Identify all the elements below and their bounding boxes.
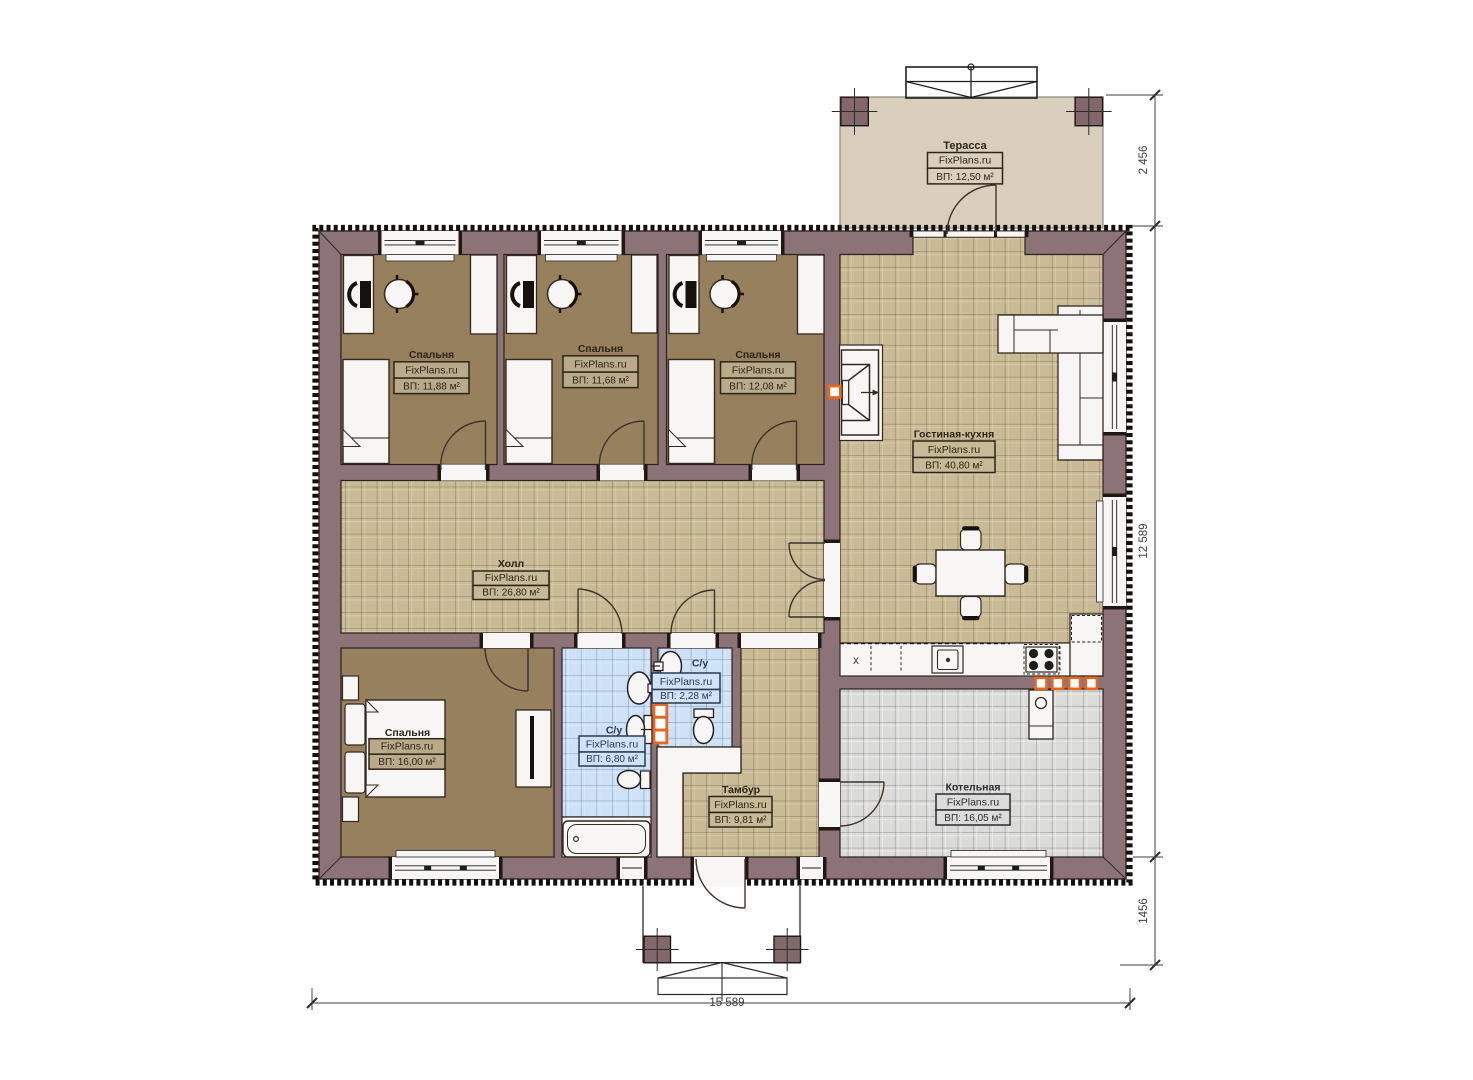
svg-text:Холл: Холл (498, 558, 524, 570)
svg-text:FixPlans.ru: FixPlans.ru (660, 676, 713, 688)
svg-text:ВП: 16,00 м²: ВП: 16,00 м² (378, 757, 436, 768)
svg-text:ВП: 26,80 м²: ВП: 26,80 м² (482, 588, 540, 599)
svg-text:Спальня: Спальня (578, 343, 623, 355)
svg-text:ВП: 9,81 м²: ВП: 9,81 м² (715, 815, 768, 826)
svg-text:ВП: 2,28 м²: ВП: 2,28 м² (660, 691, 713, 702)
svg-text:12 589: 12 589 (1138, 523, 1150, 558)
svg-text:FixPlans.ru: FixPlans.ru (574, 359, 627, 371)
svg-text:Котельная: Котельная (946, 782, 1001, 794)
svg-text:ВП: 11,88 м²: ВП: 11,88 м² (403, 382, 460, 393)
svg-text:Терасса: Терасса (943, 140, 987, 152)
svg-text:FixPlans.ru: FixPlans.ru (928, 444, 981, 456)
svg-text:Спальня: Спальня (385, 727, 430, 739)
svg-text:FixPlans.ru: FixPlans.ru (939, 155, 992, 167)
svg-text:ВП: 11,68 м²: ВП: 11,68 м² (572, 376, 629, 387)
svg-text:FixPlans.ru: FixPlans.ru (732, 365, 785, 377)
svg-text:С/у: С/у (606, 725, 623, 737)
svg-text:FixPlans.ru: FixPlans.ru (381, 741, 434, 753)
svg-text:FixPlans.ru: FixPlans.ru (714, 799, 767, 811)
svg-text:ВП: 16,05 м²: ВП: 16,05 м² (944, 813, 1002, 824)
svg-text:Гостиная-кухня: Гостиная-кухня (914, 429, 994, 441)
svg-text:ВП: 40,80 м²: ВП: 40,80 м² (925, 461, 983, 472)
svg-text:Тамбур: Тамбур (722, 784, 760, 796)
svg-text:FixPlans.ru: FixPlans.ru (405, 365, 458, 377)
svg-text:FixPlans.ru: FixPlans.ru (586, 739, 639, 751)
svg-text:С/у: С/у (692, 658, 709, 670)
svg-text:x: x (853, 655, 859, 667)
svg-text:FixPlans.ru: FixPlans.ru (485, 572, 538, 584)
svg-text:2 456: 2 456 (1138, 146, 1150, 175)
svg-text:15 589: 15 589 (709, 997, 744, 1009)
svg-text:ВП: 12,08 м²: ВП: 12,08 м² (729, 382, 787, 393)
svg-text:Спальня: Спальня (735, 349, 780, 361)
svg-text:1456: 1456 (1138, 898, 1150, 924)
svg-text:ВП: 6,80 м²: ВП: 6,80 м² (586, 754, 639, 765)
svg-text:Спальня: Спальня (409, 349, 454, 361)
svg-text:FixPlans.ru: FixPlans.ru (947, 797, 1000, 809)
svg-text:ВП: 12,50 м²: ВП: 12,50 м² (936, 172, 994, 183)
